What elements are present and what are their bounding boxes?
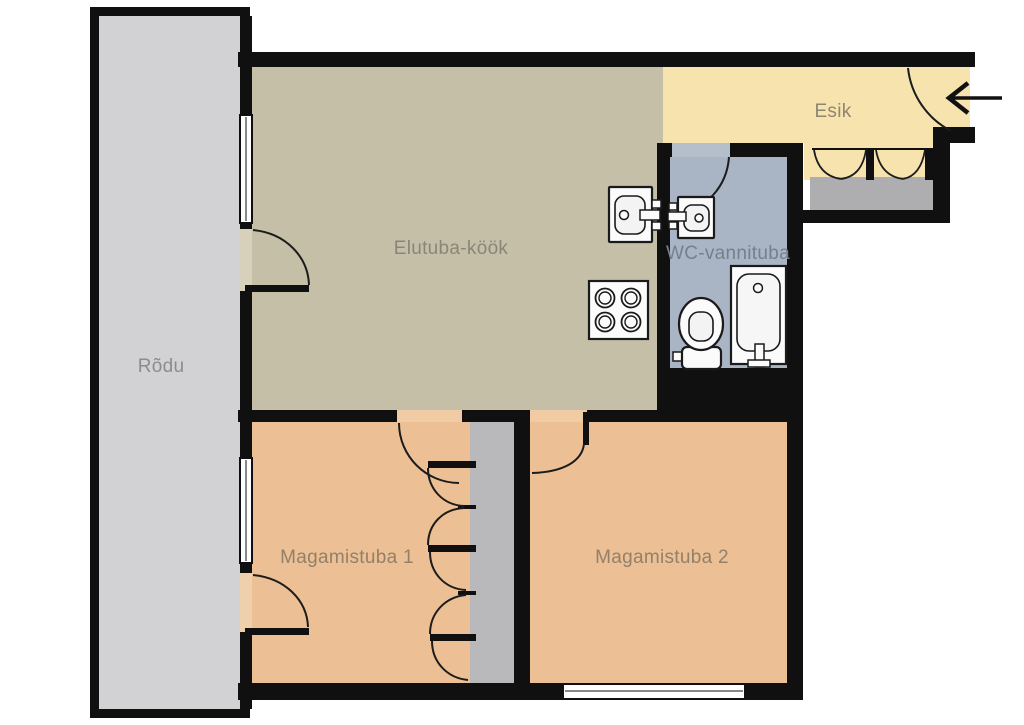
bathroom-sink-tap-2 [669, 222, 677, 229]
threshold-bed2-entry [530, 410, 587, 422]
stove [589, 281, 648, 339]
bathtub-faucet-base [748, 360, 770, 367]
kitchen-sink-drain [620, 211, 629, 220]
room-label-wc: WC-vannituba [666, 243, 790, 264]
wall-wc-top-2 [730, 143, 790, 157]
closet-stop-2 [458, 591, 476, 595]
room-floor-elutuba-top [252, 67, 663, 145]
wall-balcony-bottom [90, 709, 250, 718]
wardrobe-floor [810, 177, 933, 211]
wardrobe-post-center [866, 148, 874, 180]
wall-west-seg4 [240, 563, 252, 573]
wall-esik-step [933, 127, 975, 143]
room-label-magamistuba2: Magamistuba 2 [595, 547, 729, 568]
bathroom-sink-tap-1 [669, 203, 677, 210]
toilet-pipe [673, 352, 682, 361]
wall-wc-top-1 [657, 143, 672, 157]
closet-leaf-2 [428, 545, 476, 552]
threshold-balcony-bed1 [240, 573, 252, 632]
wall-living-bottom-1 [238, 410, 397, 422]
kitchen-sink-tap-2 [652, 222, 661, 230]
wall-bottom-2 [745, 683, 803, 700]
closet-leaf-1 [428, 461, 476, 468]
wardrobe-post-right [925, 148, 933, 180]
wall-wardrobe-bottom [790, 210, 950, 223]
floor-plan-canvas: Rõdu Elutuba-köök Esik WC-vannituba Maga… [0, 0, 1024, 725]
kitchen-sink-tap-1 [652, 200, 661, 208]
threshold-balcony-living [240, 229, 252, 291]
room-label-esik: Esik [814, 101, 851, 122]
stove-top [589, 281, 648, 339]
kitchen-sink-faucet [640, 210, 660, 220]
closet-strip-floor [470, 422, 514, 683]
room-label-rodu: Rõdu [138, 356, 185, 377]
room-label-magamistuba1: Magamistuba 1 [280, 547, 414, 568]
wall-top [238, 52, 975, 67]
wall-living-bottom-3 [587, 410, 658, 422]
bathroom-sink-faucet [668, 212, 686, 221]
wall-bedroom-divider [514, 410, 530, 683]
bathtub [731, 266, 786, 367]
door-leaf-living-balcony [245, 285, 309, 292]
wall-balcony-left [90, 7, 99, 718]
floor-plan-svg: Rõdu Elutuba-köök Esik WC-vannituba Maga… [0, 0, 1024, 725]
wall-east [787, 143, 803, 700]
closet-leaf-3 [430, 634, 476, 641]
door-leaf-bed1-balcony [245, 628, 309, 635]
room-label-elutuba: Elutuba-köök [394, 238, 509, 259]
threshold-bed1-entry [397, 410, 462, 422]
bathroom-sink-drain [695, 214, 703, 222]
wardrobe-track [812, 148, 933, 150]
threshold-wc-entry [672, 143, 730, 157]
bathtub-drain [754, 284, 763, 293]
toilet-bowl-inner [689, 312, 713, 341]
wall-wc-bottom-block [657, 368, 803, 422]
door-leaf-bed2-entry [583, 412, 589, 445]
wall-balcony-top [90, 7, 250, 16]
room-floor-elutuba [252, 145, 657, 410]
wall-bottom-1 [238, 683, 563, 700]
wall-west-seg3 [240, 291, 252, 458]
